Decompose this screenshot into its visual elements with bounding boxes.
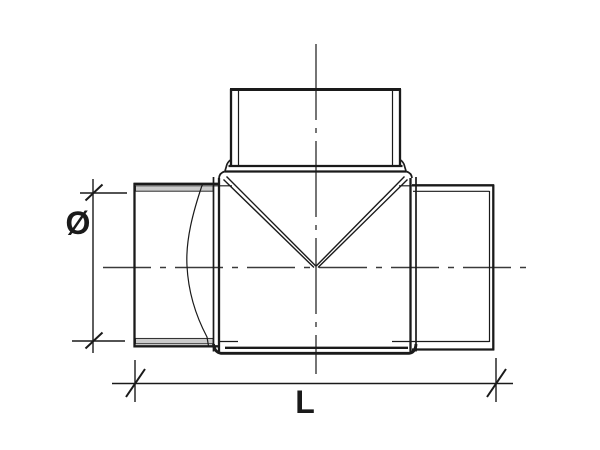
left-pipe-end bbox=[134, 183, 220, 348]
seam-left-inner bbox=[224, 180, 315, 268]
seam-right-outer bbox=[316, 177, 404, 267]
centerlines bbox=[103, 44, 527, 374]
diameter-label: Ø bbox=[66, 205, 91, 241]
seam-right-inner bbox=[318, 180, 408, 268]
collar-ogee-right bbox=[407, 172, 413, 179]
length-label: L bbox=[295, 384, 315, 420]
gasket-band-bottom bbox=[136, 338, 214, 343]
tee-fitting-technical-drawing: Ø L bbox=[0, 0, 600, 450]
drawing-svg: Ø L bbox=[0, 0, 600, 450]
collar-ogee-left bbox=[219, 172, 225, 179]
seam-left-outer bbox=[227, 177, 316, 267]
length-dimension: L bbox=[112, 358, 513, 420]
break-line bbox=[187, 184, 209, 346]
diameter-dimension: Ø bbox=[66, 179, 127, 353]
